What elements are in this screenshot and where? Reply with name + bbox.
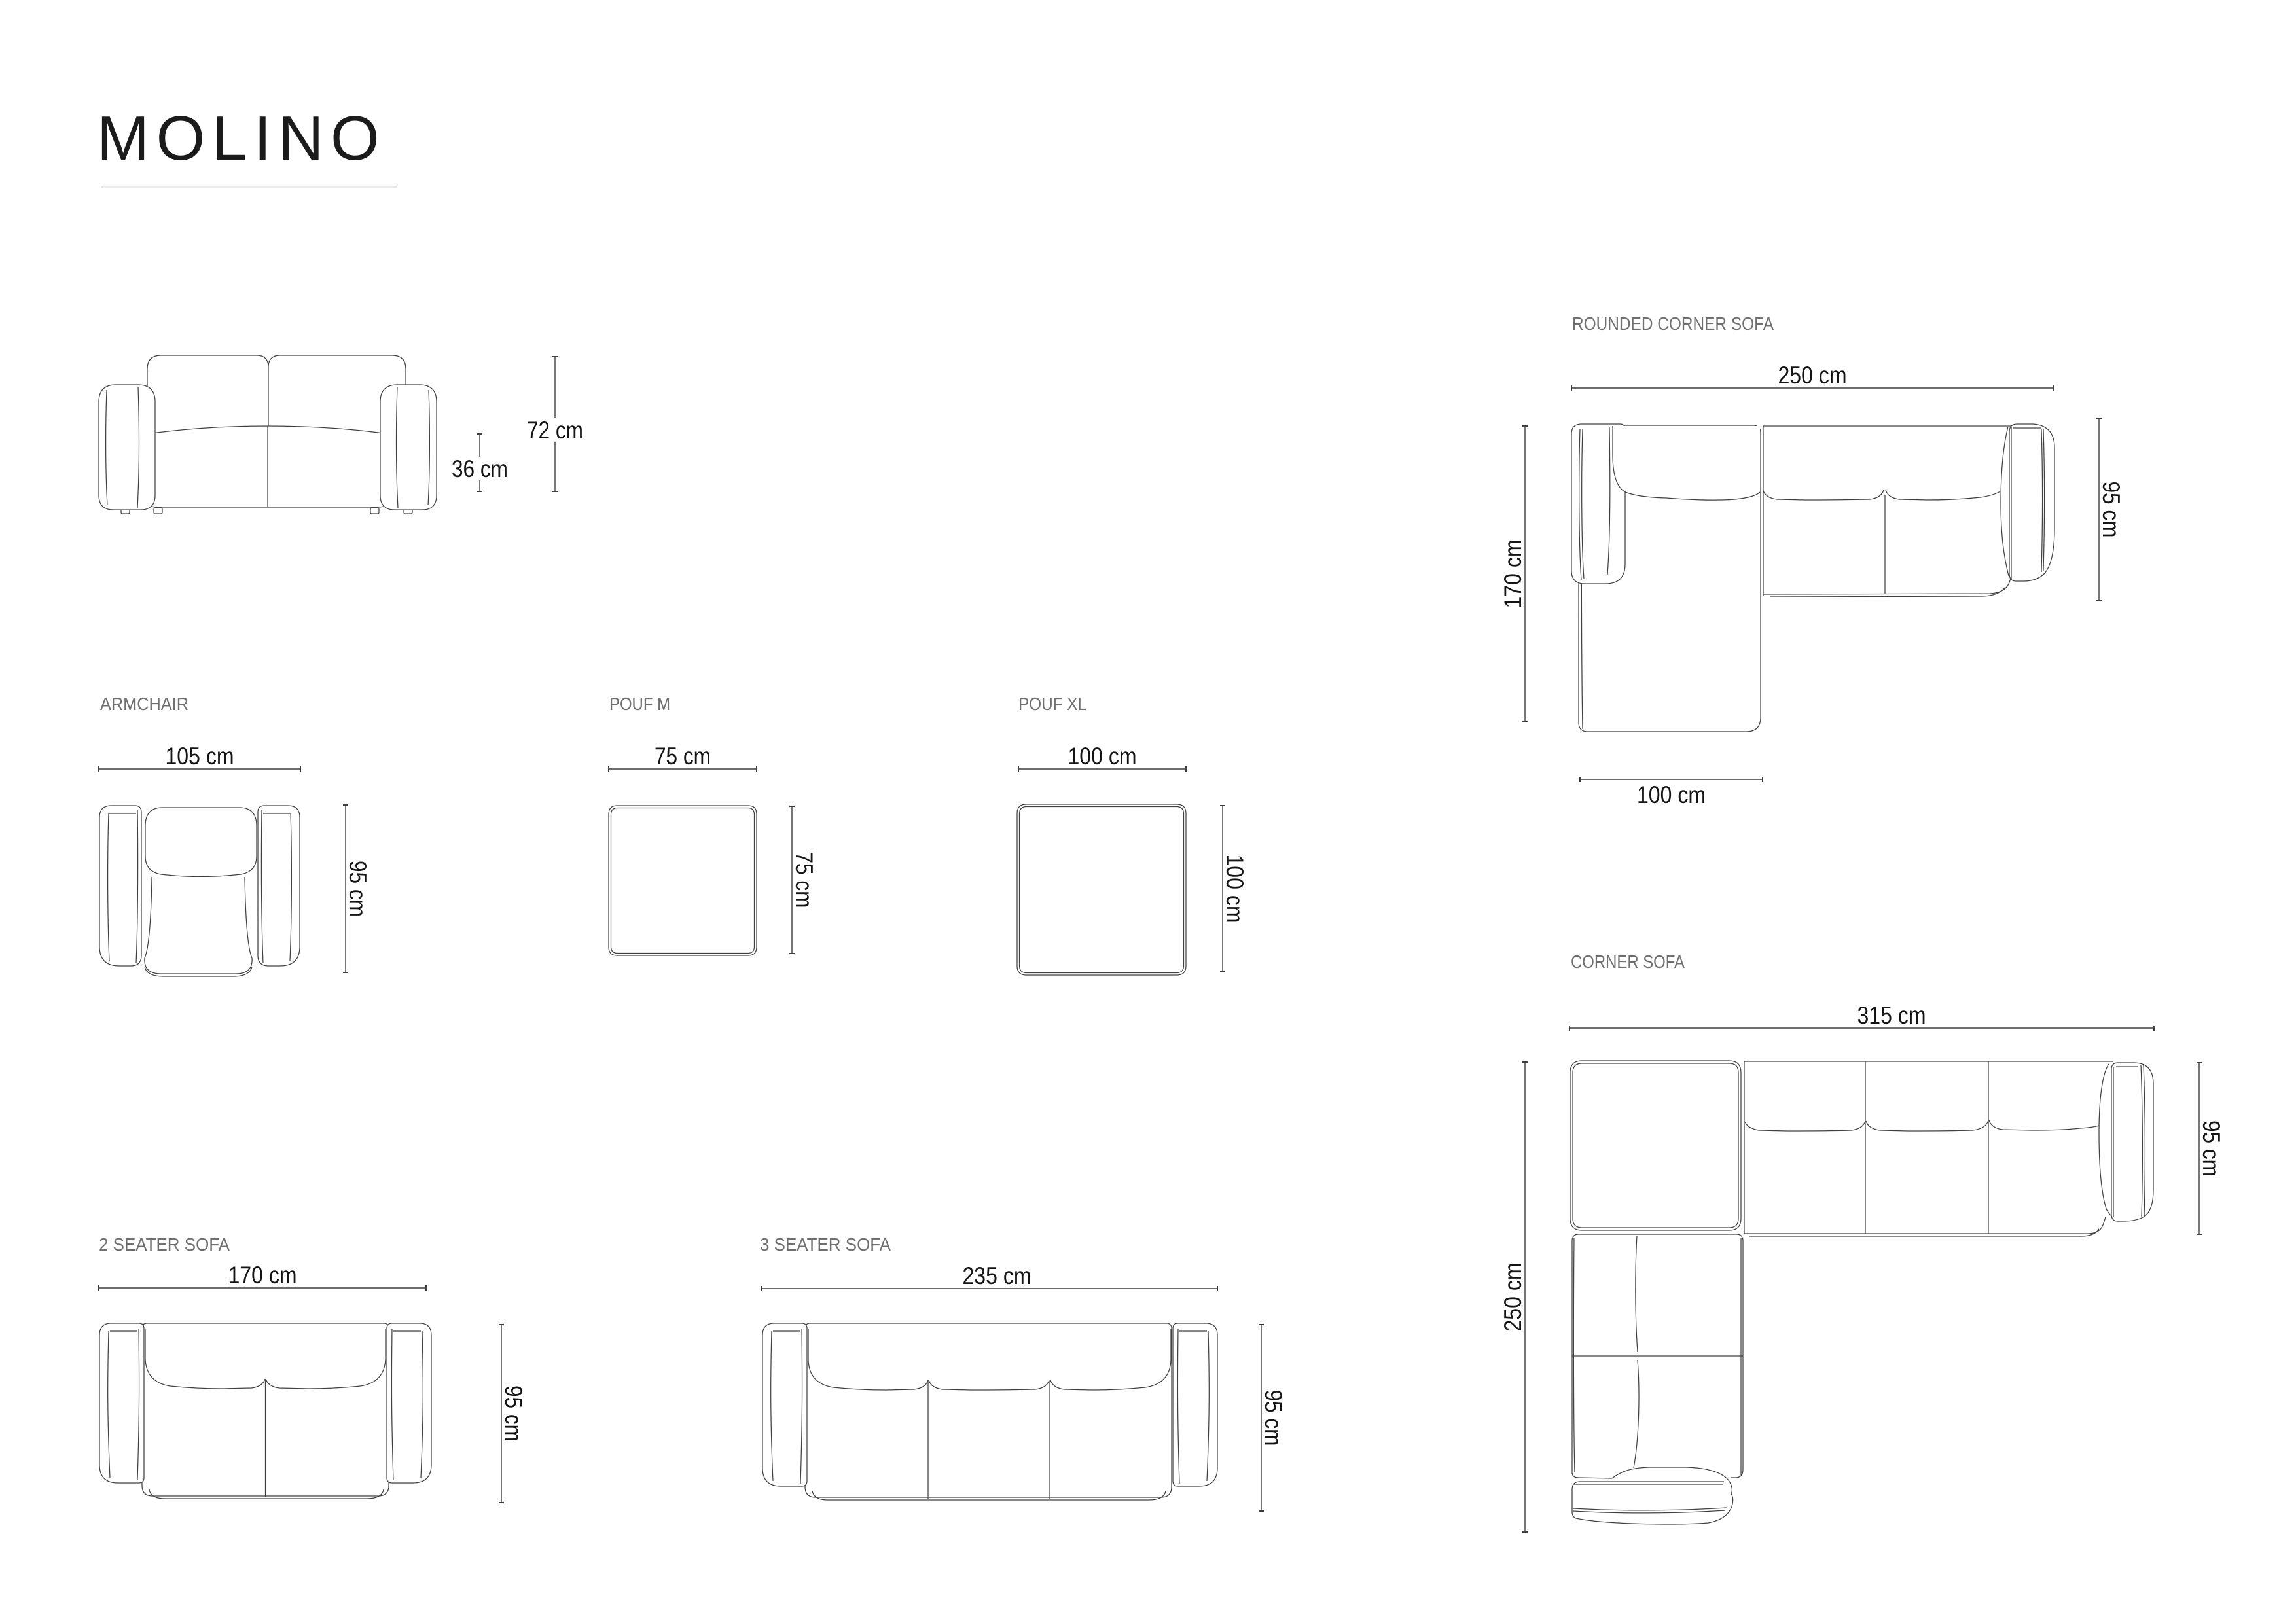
svg-text:250 cm: 250 cm [1778, 362, 1847, 389]
svg-text:POUF M: POUF M [609, 694, 670, 714]
svg-text:36 cm: 36 cm [452, 455, 508, 482]
svg-text:100 cm: 100 cm [1068, 743, 1137, 770]
svg-text:95 cm: 95 cm [344, 861, 371, 917]
svg-text:MOLINO: MOLINO [97, 103, 386, 173]
svg-text:ARMCHAIR: ARMCHAIR [100, 694, 188, 714]
svg-text:95 cm: 95 cm [2098, 482, 2125, 538]
svg-text:POUF XL: POUF XL [1018, 694, 1086, 714]
svg-text:170 cm: 170 cm [1499, 540, 1526, 609]
svg-text:95 cm: 95 cm [500, 1385, 527, 1442]
svg-text:95 cm: 95 cm [1260, 1390, 1287, 1446]
svg-text:75 cm: 75 cm [791, 852, 817, 908]
svg-text:315 cm: 315 cm [1857, 1002, 1926, 1029]
svg-text:95 cm: 95 cm [2198, 1120, 2225, 1177]
svg-text:CORNER SOFA: CORNER SOFA [1571, 952, 1685, 972]
svg-text:ROUNDED CORNER SOFA: ROUNDED CORNER SOFA [1572, 313, 1774, 334]
svg-text:72 cm: 72 cm [527, 417, 583, 444]
svg-text:170 cm: 170 cm [228, 1262, 297, 1289]
svg-text:75 cm: 75 cm [655, 743, 711, 770]
svg-text:235 cm: 235 cm [963, 1262, 1031, 1289]
svg-text:100 cm: 100 cm [1637, 781, 1706, 808]
svg-text:3 SEATER SOFA: 3 SEATER SOFA [760, 1234, 891, 1255]
svg-text:2 SEATER SOFA: 2 SEATER SOFA [99, 1234, 230, 1255]
svg-text:250 cm: 250 cm [1499, 1263, 1526, 1332]
svg-text:105 cm: 105 cm [166, 743, 234, 770]
svg-text:100 cm: 100 cm [1221, 855, 1248, 923]
